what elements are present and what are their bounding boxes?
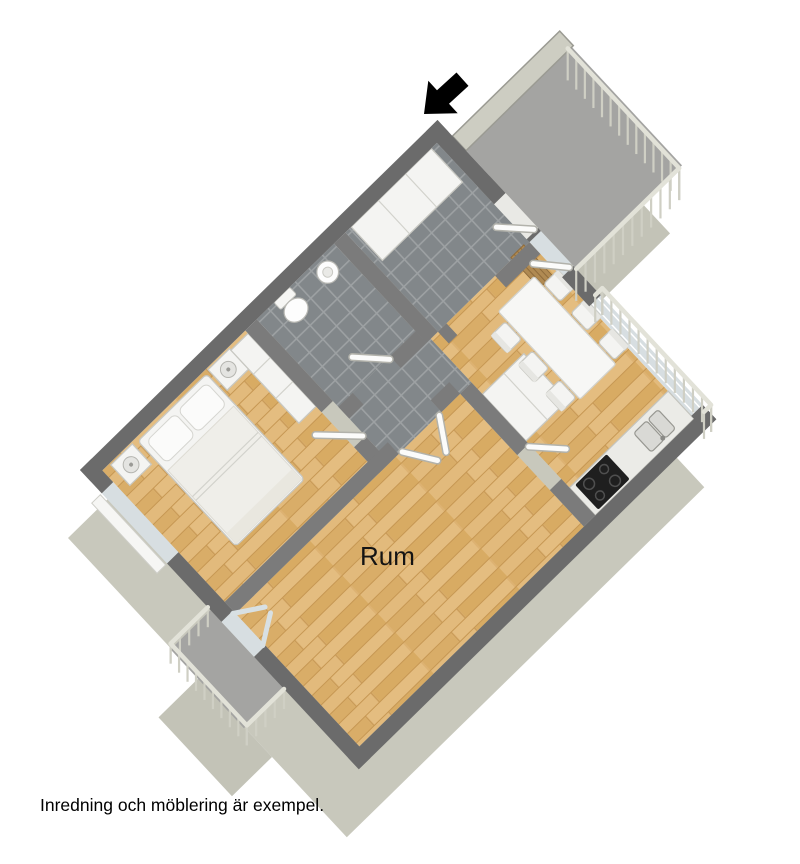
- entrance-arrow-icon: [424, 73, 469, 115]
- room-label: Rum: [360, 541, 415, 571]
- floorplan-page: Rum Inredning och möblering är exempel.: [0, 0, 800, 864]
- floorplan-3d-render: Rum Inredning och möblering är exempel.: [0, 0, 800, 864]
- disclaimer-caption: Inredning och möblering är exempel.: [40, 795, 324, 815]
- apartment-plan: [40, 15, 800, 809]
